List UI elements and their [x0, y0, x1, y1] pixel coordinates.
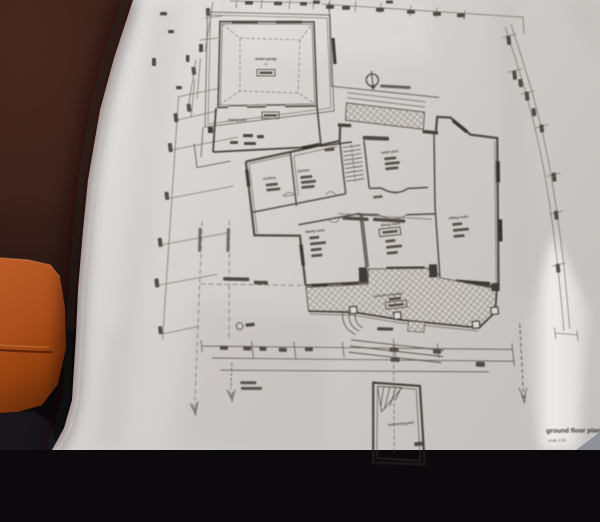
svg-text:double garage: double garage [255, 57, 277, 61]
svg-text:4g: 4g [265, 62, 268, 66]
svg-text:drying yard: drying yard [228, 118, 246, 122]
